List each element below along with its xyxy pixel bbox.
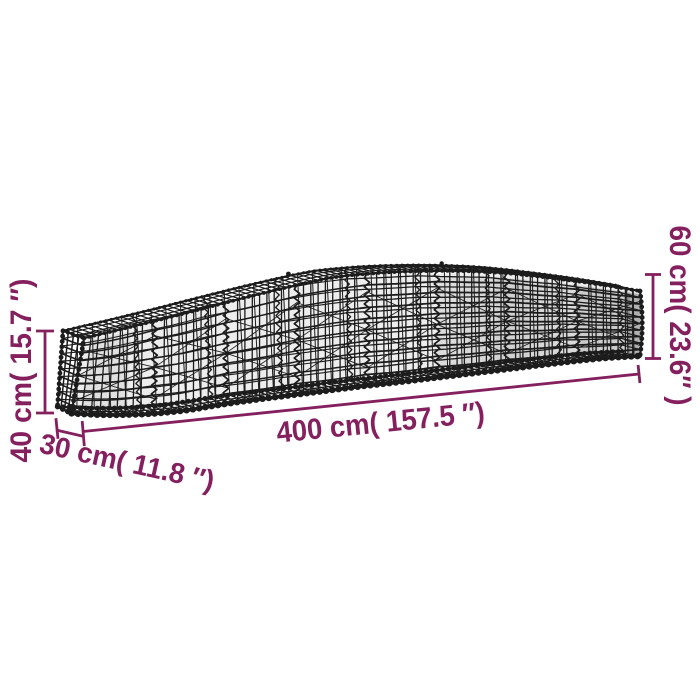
svg-text:40 cm( 15.7 ″): 40 cm( 15.7 ″) xyxy=(5,279,38,463)
svg-text:60 cm( 23.6″ ): 60 cm( 23.6″ ) xyxy=(663,226,696,406)
